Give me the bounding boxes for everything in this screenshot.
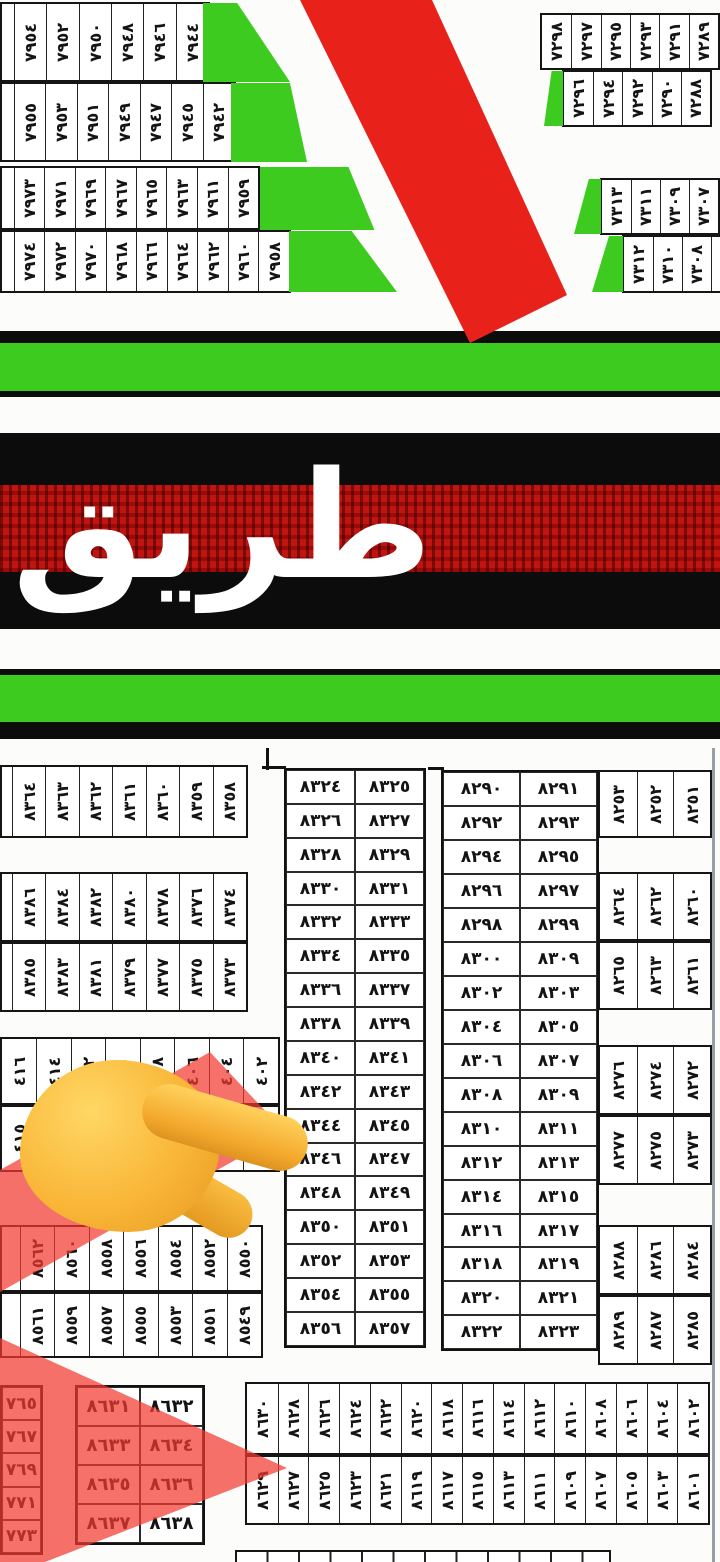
plot-cell: ٨٢٩٥ (520, 840, 597, 874)
plot-cell: ٨٣٢٤ (286, 770, 355, 804)
plot-cell: ٨٢٩٢ (443, 806, 520, 840)
plot-cell: ٧٣١٠ (653, 237, 682, 291)
plot-cell: ٨٢٧٢ (673, 1047, 710, 1113)
plot-cell: ٨٢٦٤ (600, 874, 637, 939)
plot-cell: ٨٣٨٥ (12, 944, 45, 1010)
plot-cell: ٨٢٨٦ (637, 1227, 674, 1293)
plot-cell: ٨٢٩٣ (520, 806, 597, 840)
plot-cell: ٧٩٦٤ (167, 232, 198, 291)
plot-cell: ٨٦٠٨ (585, 1384, 616, 1453)
plot-cell: ٨٢٧٣ (673, 1117, 710, 1183)
plot-cell: ٨٣٠٠ (443, 942, 520, 976)
plot-cell: ٨٣٥٤ (286, 1278, 355, 1312)
plot-cell: ٨٢٦٥ (600, 943, 637, 1008)
plot-cell: ٧٩٧٣ (14, 168, 45, 228)
plot-cell: ٨٣١٣ (520, 1146, 597, 1180)
plot-cell: ٨٢٨٥ (673, 1297, 710, 1363)
green-road-band (0, 675, 720, 722)
plot-cell: ٧٩٥٥ (14, 84, 45, 160)
plot-cell: ٨٢٩٩ (520, 908, 597, 942)
plot-cell: ٧٩٤٥ (171, 84, 202, 160)
plot-cell: ٨٣٣٠ (286, 872, 355, 906)
plot-cell: ٧٩٥٨ (258, 232, 289, 291)
plot-cell: ٧٩٤٩ (108, 84, 139, 160)
plot-cell: ٨٣٣٢ (286, 905, 355, 939)
plot-cell: ٧٣٠٧ (689, 180, 718, 233)
plot-cell: ٨٢٧٤ (637, 1047, 674, 1113)
plot-cell: ٨٣٤٩ (355, 1176, 424, 1210)
plot-cell: ٨٣٢٧ (355, 804, 424, 838)
plot-cell: ٨٢٥٢ (637, 772, 674, 836)
plot-cell: ٨٦٢١ (370, 1457, 401, 1523)
plot-cell: ٨٣٢٦ (286, 804, 355, 838)
plot-strip: ٨٣٨٥٨٣٨٣٨٣٨١٨٣٧٩٨٣٧٧٨٣٧٥٨٣٧٣ (0, 942, 248, 1012)
plot-cell: ٨٦٣٠ (247, 1384, 278, 1453)
plot-cell: ٨٣١١ (520, 1112, 597, 1146)
plot-cell: ٨٣٠٨ (443, 1078, 520, 1112)
plot-cell-partial (2, 944, 12, 1010)
plot-strip: ٧٣١٢٧٣١٠٧٣٠٨ (622, 235, 720, 293)
plot-cell: ٧٢٩١ (659, 15, 688, 68)
plot-strip: ٨٥٦١٨٥٥٩٨٥٥٧٨٥٥٥٨٥٥٣٨٥٥١٨٥٤٩ (0, 1292, 263, 1358)
green-block-wedge (289, 231, 397, 292)
plot-cell: ٨٦٠٦ (616, 1384, 647, 1453)
plot-strip: ٧٢٩٨٧٢٩٧٧٢٩٥٧٢٩٣٧٢٩١٧٢٨٩ (540, 13, 720, 70)
black-bar (0, 722, 720, 739)
plot-cell: ٨٢٧٥ (637, 1117, 674, 1183)
plot-cell: ٨٣٥٥ (355, 1278, 424, 1312)
plot-cell: ٨٣٧٦ (179, 874, 212, 940)
partial-plot-strip (235, 1550, 611, 1562)
green-road-band (0, 343, 720, 391)
plot-strip: ٨٢٨٨٨٢٨٦٨٢٨٤ (598, 1225, 712, 1295)
plot-cell: ٨٣٢٥ (355, 770, 424, 804)
plot-cell: ٨٦٠١ (677, 1457, 708, 1523)
plot-cell: ٨٣١٥ (520, 1180, 597, 1214)
black-line (0, 391, 720, 397)
plot-cell: ٨٢٩١ (520, 772, 597, 806)
plot-cell: ٨٣٠٤ (443, 1010, 520, 1044)
plot-strip: ٨٢٧٦٨٢٧٤٨٢٧٢ (598, 1045, 712, 1115)
plot-cell: ٨٣٦٠ (146, 767, 179, 836)
plot-cell: ٨٣٥٧ (355, 1312, 424, 1346)
plot-cell: ٧٩٦١ (197, 168, 228, 228)
plot-cell: ٨٣٦٣ (45, 767, 78, 836)
plot-cell-partial (2, 874, 12, 940)
plot-cell: ٨٣٣٣ (355, 905, 424, 939)
corner-notch (262, 766, 286, 769)
plot-cell: ٨٣٧٧ (146, 944, 179, 1010)
cadastral-map: طريق ٧٩٥٤٧٩٥٢٧٩٥٠٧٩٤٨٧٩٤٦٧٩٤٤٧٩٥٥٧٩٥٣٧٩٥… (0, 0, 720, 1562)
plot-cell: ٨٣٢٣ (520, 1315, 597, 1349)
plot-cell: ٧٩٧٤ (14, 232, 45, 291)
plot-cell: ٧٢٩٠ (652, 72, 681, 125)
plot-cell: ٨٦٢٨ (278, 1384, 309, 1453)
plot-cell: ٨٣٣١ (355, 872, 424, 906)
plot-cell (711, 237, 720, 291)
plot-cell: ٨٦١٢ (524, 1384, 555, 1453)
plot-cell: ٨٣٦٤ (12, 767, 45, 836)
plot-cell: ٨٥٦١ (20, 1294, 54, 1356)
plot-cell: ٨٦٢٢ (370, 1384, 401, 1453)
plot-cell: ٨٢٦٢ (637, 874, 674, 939)
plot-cell: ٧٢٩٦ (564, 72, 593, 125)
plot-cell: ٨٦١٨ (431, 1384, 462, 1453)
corner-notch (428, 767, 444, 770)
plot-cell: ٨٦١٧ (431, 1457, 462, 1523)
road-label: طريق (12, 436, 342, 624)
plot-cell: ٨٣٠٣ (520, 976, 597, 1010)
plot-strip: ٧٩٥٤٧٩٥٢٧٩٥٠٧٩٤٨٧٩٤٦٧٩٤٤ (0, 2, 210, 82)
plot-cell: ٨٣٧٤ (213, 874, 246, 940)
plot-cell: ٨٢٨٨ (600, 1227, 637, 1293)
plot-cell: ٧٢٨٩ (689, 15, 718, 68)
plot-table: ٨٢٩٠٨٢٩١٨٢٩٢٨٢٩٣٨٢٩٤٨٢٩٥٨٢٩٦٨٢٩٧٨٢٩٨٨٢٩٩… (441, 770, 599, 1351)
green-block-wedge (203, 3, 293, 82)
plot-cell-partial (2, 84, 14, 160)
plot-cell: ٨٣٠٧ (520, 1044, 597, 1078)
plot-cell: ٧٢٩٣ (630, 15, 659, 68)
plot-cell: ٨٢٥٣ (600, 772, 637, 836)
plot-cell: ٨٦٠٢ (677, 1384, 708, 1453)
plot-cell: ٨٦٢٦ (308, 1384, 339, 1453)
plot-cell: ٨٣٣٦ (286, 973, 355, 1007)
plot-cell: ٨٢٥١ (673, 772, 710, 836)
plot-cell: ٨٢٧٧ (600, 1117, 637, 1183)
plot-cell: ٧٩٥٤ (14, 4, 46, 80)
plot-cell: ٨٣١٠ (443, 1112, 520, 1146)
plot-cell: ٨٣٠٥ (520, 1010, 597, 1044)
plot-cell: ٧٩٤٦ (143, 4, 175, 80)
plot-cell: ٨٣٠٦ (443, 1044, 520, 1078)
plot-strip: ٨٢٧٧٨٢٧٥٨٢٧٣ (598, 1115, 712, 1185)
plot-cell: ٨٦١٦ (462, 1384, 493, 1453)
plot-cell: ٨٢٨٤ (673, 1227, 710, 1293)
plot-cell: ٨٥٥٧ (89, 1294, 123, 1356)
plot-cell: ٨٢٩٧ (520, 874, 597, 908)
plot-strip: ٧٣١٣٧٣١١٧٣٠٩٧٣٠٧ (600, 178, 720, 235)
plot-cell: ٧٩٥١ (77, 84, 108, 160)
plot-cell: ٧٩٥٠ (79, 4, 111, 80)
plot-cell: ٨٣١٧ (520, 1214, 597, 1248)
plot-cell: ٨٣٥١ (355, 1210, 424, 1244)
plot-cell: ٧٩٦٠ (228, 232, 259, 291)
plot-cell: ٨٢٩٠ (443, 772, 520, 806)
green-block-wedge (231, 83, 307, 162)
plot-cell: ٨٦٠٧ (585, 1457, 616, 1523)
plot-cell: ٨٣٠٩ (520, 942, 597, 976)
plot-cell: ٧٩٧٢ (44, 232, 75, 291)
plot-cell: ٨٥٤٩ (227, 1294, 261, 1356)
plot-cell: ٧٩٤٧ (140, 84, 171, 160)
plot-cell: ٨٦٢٠ (401, 1384, 432, 1453)
plot-cell: ٨٣٨٤ (45, 874, 78, 940)
plot-cell: ٧٣٠٨ (682, 237, 711, 291)
plot-cell: ٨٦١٠ (554, 1384, 585, 1453)
plot-cell: ٨٢٦٠ (673, 874, 710, 939)
plot-cell: ٨٢٧٦ (600, 1047, 637, 1113)
plot-cell: ٨٥٥٥ (123, 1294, 157, 1356)
plot-cell: ٨٦٠٩ (554, 1457, 585, 1523)
plot-cell: ٨٢٦٣ (637, 943, 674, 1008)
plot-cell: ٧٩٦٢ (197, 232, 228, 291)
plot-cell: ٨٣١٨ (443, 1247, 520, 1281)
plot-cell: ٨٣٥٦ (286, 1312, 355, 1346)
plot-cell: ٧٣١٢ (624, 237, 653, 291)
plot-cell: ٨٣٠٩ (520, 1078, 597, 1112)
plot-cell: ٨٣٦٢ (79, 767, 112, 836)
plot-cell: ٨٦٠٥ (616, 1457, 647, 1523)
green-block-wedge (592, 236, 623, 292)
plot-cell: ٨٣٨٠ (112, 874, 145, 940)
plot-cell: ٨٣٢٠ (443, 1281, 520, 1315)
plot-cell: ٨٣٢٨ (286, 838, 355, 872)
plot-cell: ٧٩٦٣ (166, 168, 197, 228)
plot-strip: ٨٢٦٥٨٢٦٣٨٢٦١ (598, 941, 712, 1010)
plot-cell: ٨٢٨٩ (600, 1297, 637, 1363)
plot-cell: ٨٣٤٧ (355, 1143, 424, 1177)
green-block-wedge (544, 71, 563, 126)
plot-cell: ٨٦١١ (524, 1457, 555, 1523)
plot-cell: ٨٣٨٣ (45, 944, 78, 1010)
plot-cell: ٨٣١٦ (443, 1214, 520, 1248)
plot-strip: ٨٣٨٦٨٣٨٤٨٣٨٢٨٣٨٠٨٣٧٨٨٣٧٦٨٣٧٤ (0, 872, 248, 942)
plot-cell: ٨٣١٩ (520, 1247, 597, 1281)
black-bar (0, 331, 720, 343)
plot-cell: ٧٩٦٥ (136, 168, 167, 228)
plot-cell: ٨٢٩٨ (443, 908, 520, 942)
plot-cell: ٨٣٤٣ (355, 1075, 424, 1109)
plot-cell: ٧٩٤٢ (203, 84, 234, 160)
plot-strip: ٧٩٧٣٧٩٧١٧٩٦٩٧٩٦٧٧٩٦٥٧٩٦٣٧٩٦١٧٩٥٩ (0, 166, 260, 230)
plot-cell: ٨٣٦١ (112, 767, 145, 836)
plot-strip: ٨٢٥٣٨٢٥٢٨٢٥١ (598, 770, 712, 838)
plot-cell: ٨٣١٢ (443, 1146, 520, 1180)
plot-cell: ٧٩٦٧ (105, 168, 136, 228)
plot-cell: ٨٣٢١ (520, 1281, 597, 1315)
plot-cell: ٨٣٣٩ (355, 1007, 424, 1041)
plot-cell: ٧٢٩٤ (593, 72, 622, 125)
plot-strip: ٨٢٨٩٨٢٨٧٨٢٨٥ (598, 1295, 712, 1365)
pointing-hand-emoji (12, 1052, 307, 1247)
plot-cell: ٨٣٣٨ (286, 1007, 355, 1041)
plot-cell: ٧٢٩٥ (601, 15, 630, 68)
plot-strip: ٧٩٧٤٧٩٧٢٧٩٧٠٧٩٦٨٧٩٦٦٧٩٦٤٧٩٦٢٧٩٦٠٧٩٥٨ (0, 230, 291, 293)
plot-cell: ٨٥٥٣ (158, 1294, 192, 1356)
green-block-wedge (260, 167, 378, 230)
plot-cell: ٨٣٨٢ (79, 874, 112, 940)
plot-cell: ٨٥٥٩ (54, 1294, 88, 1356)
plot-cell: ٧٩٥٢ (46, 4, 78, 80)
plot-cell: ٨٦٠٣ (647, 1457, 678, 1523)
plot-cell-partial (2, 4, 14, 80)
plot-cell: ٨٣٢٩ (355, 838, 424, 872)
plot-cell: ٨٦٠٤ (647, 1384, 678, 1453)
plot-cell: ٧٣١٣ (602, 180, 631, 233)
plot-cell: ٧٩٦٩ (75, 168, 106, 228)
plot-cell: ٨٣٣٧ (355, 973, 424, 1007)
map-edge-line (712, 748, 715, 1562)
plot-cell: ٨٦٢٤ (339, 1384, 370, 1453)
plot-cell: ٨٣٥٣ (355, 1244, 424, 1278)
plot-cell: ٨٣٢٢ (443, 1315, 520, 1349)
plot-cell: ٨٢٩٤ (443, 840, 520, 874)
plot-strip: ٧٩٥٥٧٩٥٣٧٩٥١٧٩٤٩٧٩٤٧٧٩٤٥٧٩٤٢ (0, 82, 236, 162)
plot-cell: ٧٩٥٩ (228, 168, 259, 228)
plot-cell: ٨٣٧٩ (112, 944, 145, 1010)
plot-strip: ٨٣٦٤٨٣٦٣٨٣٦٢٨٣٦١٨٣٦٠٨٣٥٩٨٣٥٨ (0, 765, 248, 838)
plot-cell: ٨٦٢٣ (339, 1457, 370, 1523)
plot-cell: ٧٢٩٧ (571, 15, 600, 68)
plot-cell: ٨٦١٣ (493, 1457, 524, 1523)
plot-cell: ٧٢٨٨ (681, 72, 710, 125)
plot-cell: ٨٣٥٢ (286, 1244, 355, 1278)
plot-cell: ٨٣٨١ (79, 944, 112, 1010)
plot-cell: ٨٣١٤ (443, 1180, 520, 1214)
plot-cell: ٧٢٩٨ (542, 15, 571, 68)
plot-cell: ٧٩٧١ (44, 168, 75, 228)
plot-cell: ٨٢٨٧ (637, 1297, 674, 1363)
plot-cell: ٨٦٢٥ (308, 1457, 339, 1523)
plot-strip: ٨٦٣٠٨٦٢٨٨٦٢٦٨٦٢٤٨٦٢٢٨٦٢٠٨٦١٨٨٦١٦٨٦١٤٨٦١٢… (245, 1382, 710, 1455)
plot-cell: ٨٣٧٣ (213, 944, 246, 1010)
plot-cell: ٨٦١٥ (462, 1457, 493, 1523)
plot-cell: ٧٩٤٨ (111, 4, 143, 80)
plot-cell: ٨٣٨٦ (12, 874, 45, 940)
plot-cell: ٨٢٩٦ (443, 874, 520, 908)
plot-cell: ٧٣١١ (631, 180, 660, 233)
plot-cell: ٨٣٤١ (355, 1041, 424, 1075)
plot-cell-partial (2, 767, 12, 836)
plot-cell: ٨٣٤٥ (355, 1109, 424, 1143)
plot-cell: ٨٣٧٨ (146, 874, 179, 940)
plot-cell: ٧٩٦٨ (106, 232, 137, 291)
green-block-wedge (574, 179, 601, 234)
plot-cell: ٨٣٠٢ (443, 976, 520, 1010)
plot-cell: ٨٣٥٩ (179, 767, 212, 836)
plot-cell: ٨٥٥١ (192, 1294, 226, 1356)
plot-strip: ٨٢٦٤٨٢٦٢٨٢٦٠ (598, 872, 712, 941)
plot-cell: ٨٣٣٤ (286, 939, 355, 973)
plot-cell: ٧٢٩٢ (622, 72, 651, 125)
plot-cell: ٨٣٧٥ (179, 944, 212, 1010)
plot-cell: ٨٦١٩ (401, 1457, 432, 1523)
plot-strip: ٨٦٢٩٨٦٢٧٨٦٢٥٨٦٢٣٨٦٢١٨٦١٩٨٦١٧٨٦١٥٨٦١٣٨٦١١… (245, 1455, 710, 1525)
plot-strip: ٧٢٩٦٧٢٩٤٧٢٩٢٧٢٩٠٧٢٨٨ (562, 70, 712, 127)
plot-cell: ٧٩٧٠ (75, 232, 106, 291)
plot-cell: ٨٦١٤ (493, 1384, 524, 1453)
plot-cell: ٧٩٥٣ (45, 84, 76, 160)
plot-cell: ٧٩٦٦ (136, 232, 167, 291)
plot-cell: ٧٣٠٩ (660, 180, 689, 233)
plot-cell: ٨٣٣٥ (355, 939, 424, 973)
plot-cell-partial (2, 232, 14, 291)
plot-cell: ٨٣٥٨ (213, 767, 246, 836)
plot-cell-partial (2, 168, 14, 228)
plot-cell: ٨٢٦١ (673, 943, 710, 1008)
